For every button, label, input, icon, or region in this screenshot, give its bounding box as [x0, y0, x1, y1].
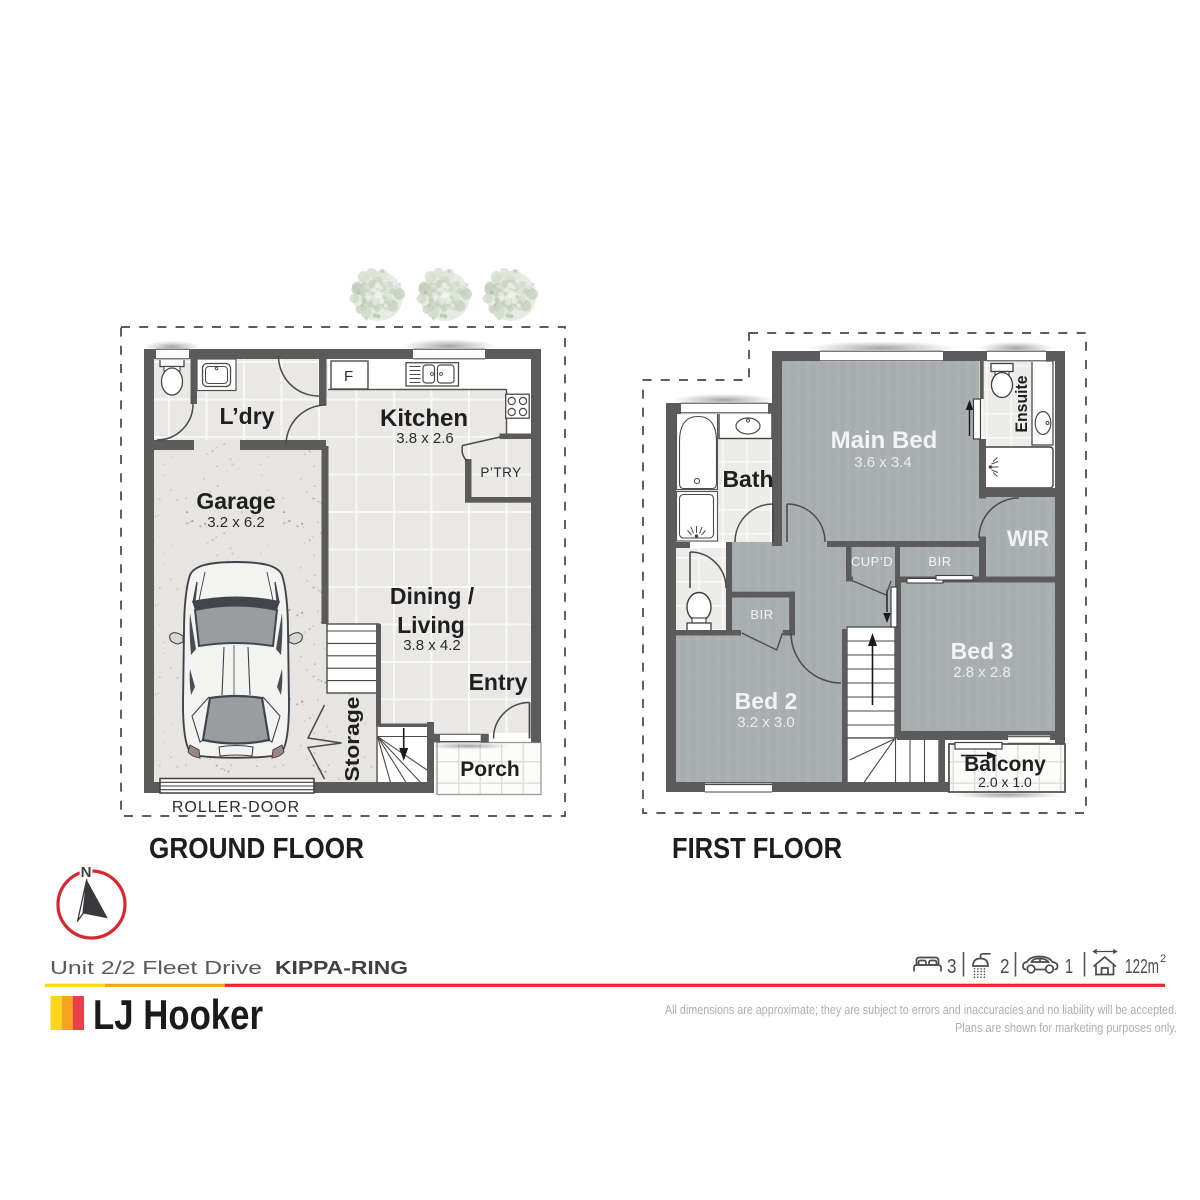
svg-text:Bed 2: Bed 2 — [735, 688, 798, 714]
svg-text:Bed 3: Bed 3 — [951, 638, 1014, 664]
svg-text:Storage: Storage — [342, 697, 364, 782]
svg-text:Ensuite: Ensuite — [1012, 376, 1031, 433]
svg-text:All dimensions are approximate: All dimensions are approximate; they are… — [665, 1003, 1177, 1017]
svg-text:Living: Living — [397, 612, 465, 638]
svg-text:2.0 x 1.0: 2.0 x 1.0 — [978, 774, 1032, 790]
svg-text:Garage: Garage — [196, 488, 275, 514]
svg-text:122m: 122m — [1125, 956, 1159, 978]
svg-text:P’TRY: P’TRY — [480, 465, 521, 480]
svg-text:BIR: BIR — [750, 607, 773, 622]
svg-text:KIPPA-RING: KIPPA-RING — [275, 958, 408, 978]
svg-text:N: N — [81, 864, 92, 881]
svg-text:3.8 x 4.2: 3.8 x 4.2 — [403, 637, 461, 654]
svg-text:Dining /: Dining / — [390, 583, 475, 609]
svg-text:3: 3 — [947, 956, 957, 978]
svg-text:3.2 x 3.0: 3.2 x 3.0 — [737, 714, 795, 731]
svg-text:2: 2 — [1000, 956, 1010, 978]
svg-text:CUP’D: CUP’D — [851, 554, 893, 569]
svg-text:Kitchen: Kitchen — [380, 405, 468, 432]
svg-text:Entry: Entry — [469, 669, 528, 695]
svg-text:L’dry: L’dry — [220, 403, 275, 429]
svg-text:Balcony: Balcony — [964, 753, 1046, 776]
svg-text:3.6 x 3.4: 3.6 x 3.4 — [854, 454, 912, 471]
svg-text:Plans are shown for marketing: Plans are shown for marketing purposes o… — [955, 1021, 1177, 1035]
svg-text:WIR: WIR — [1007, 526, 1049, 551]
svg-text:BIR: BIR — [928, 554, 951, 569]
svg-text:GROUND FLOOR: GROUND FLOOR — [149, 833, 364, 865]
svg-text:LJ Hooker: LJ Hooker — [93, 991, 263, 1038]
svg-text:Bath: Bath — [722, 466, 773, 492]
svg-text:1: 1 — [1065, 956, 1073, 978]
svg-text:Unit 2/2 Fleet Drive: Unit 2/2 Fleet Drive — [50, 958, 262, 978]
svg-text:2.8 x 2.8: 2.8 x 2.8 — [953, 664, 1011, 681]
svg-text:2: 2 — [1160, 953, 1166, 965]
svg-text:3.2 x 6.2: 3.2 x 6.2 — [207, 514, 265, 531]
svg-text:Main Bed: Main Bed — [831, 427, 938, 454]
svg-text:Porch: Porch — [460, 758, 520, 781]
svg-text:ROLLER-DOOR: ROLLER-DOOR — [172, 799, 300, 816]
svg-text:F: F — [344, 368, 353, 385]
svg-text:3.8 x 2.6: 3.8 x 2.6 — [396, 430, 454, 447]
svg-text:FIRST FLOOR: FIRST FLOOR — [672, 833, 842, 865]
